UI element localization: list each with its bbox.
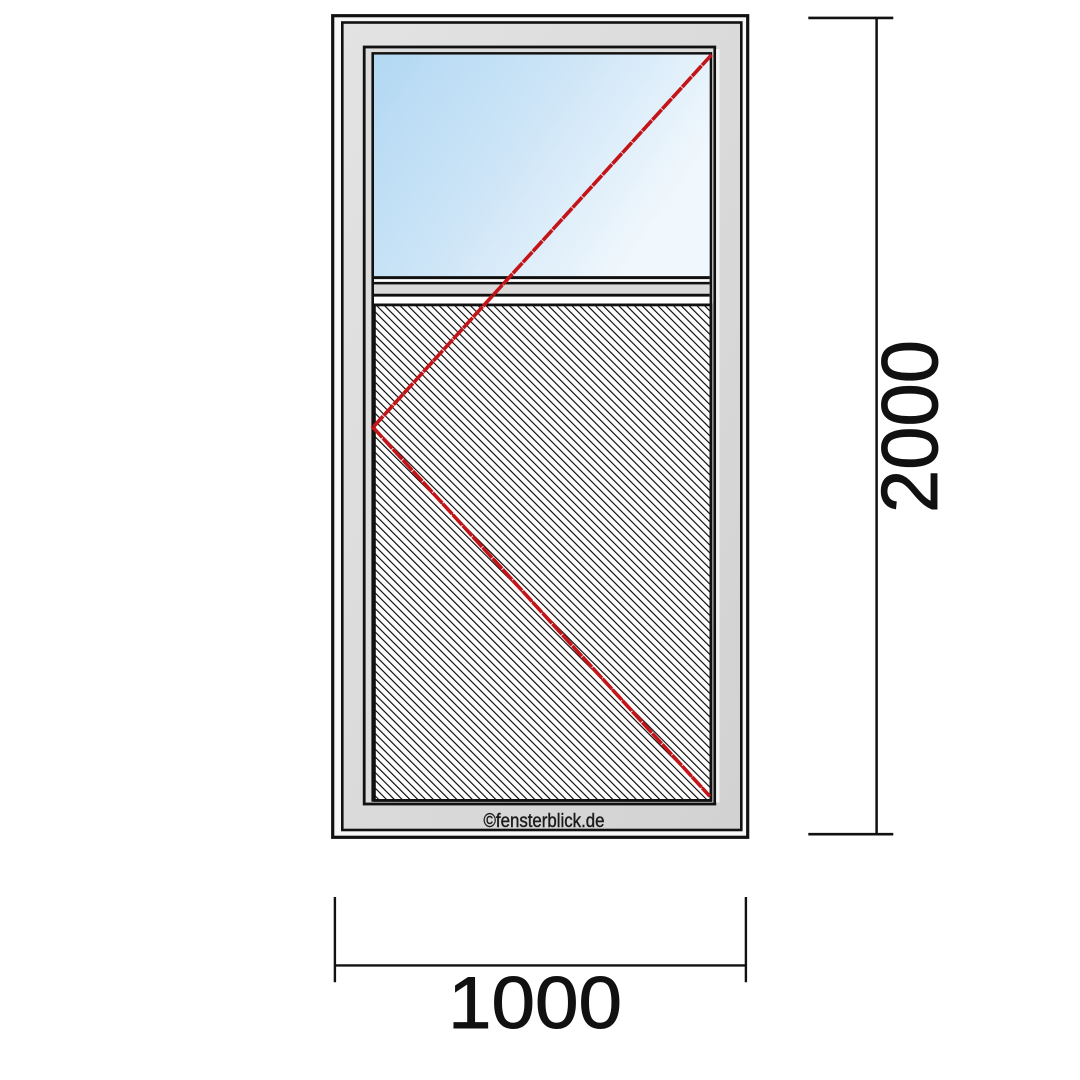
svg-text:1000: 1000 <box>448 963 622 1044</box>
svg-text:2000: 2000 <box>865 340 954 513</box>
svg-text:©fensterblick.de: ©fensterblick.de <box>484 811 605 832</box>
